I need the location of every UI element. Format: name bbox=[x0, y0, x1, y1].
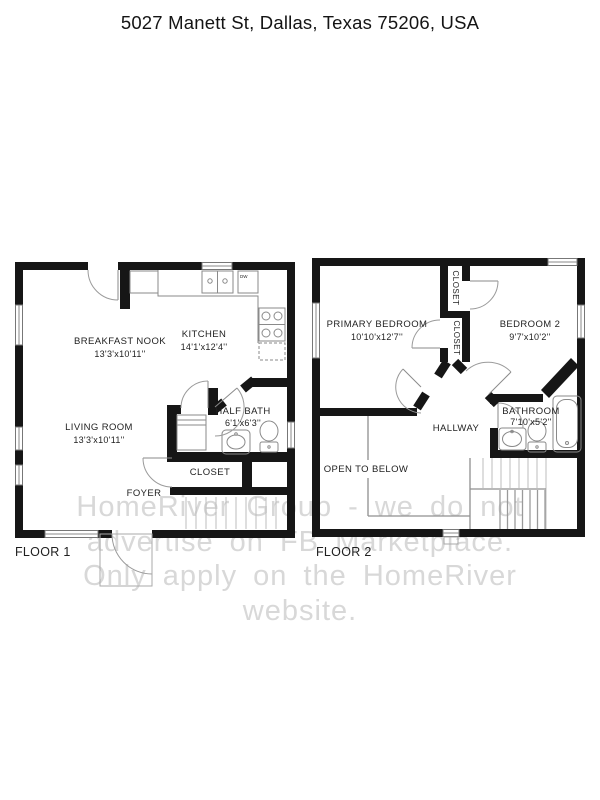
room-label-half-bath: HALF BATH bbox=[215, 406, 270, 417]
room-dims-living-room: 13'3'x10'11'' bbox=[73, 435, 124, 445]
room-label-breakfast-nook: BREAKFAST NOOK bbox=[74, 336, 166, 347]
floor2-windows bbox=[313, 259, 585, 545]
floor2-label: FLOOR 2 bbox=[316, 545, 372, 559]
floorplan-canvas: DW bbox=[0, 0, 600, 800]
closet-door bbox=[143, 458, 172, 487]
floor1-plan: DW bbox=[15, 262, 295, 586]
room-dims-kitchen: 14'1'x12'4'' bbox=[181, 342, 228, 352]
room-dims-half-bath: 6'1'x6'3'' bbox=[225, 418, 261, 428]
window bbox=[16, 305, 23, 345]
porch-steps bbox=[100, 534, 152, 586]
pantry-shelves bbox=[177, 415, 206, 450]
room-dims-primary-bedroom: 10'10'x12'7'' bbox=[351, 332, 403, 342]
window bbox=[16, 465, 23, 485]
stove bbox=[259, 308, 285, 341]
dishwasher: DW bbox=[238, 271, 258, 293]
window bbox=[443, 530, 459, 545]
dishwasher-label: DW bbox=[240, 274, 248, 279]
room-label-foyer: FOYER bbox=[127, 488, 162, 499]
kitchen-hall-door bbox=[181, 381, 208, 408]
window bbox=[578, 305, 585, 338]
room-label-open-to-below: OPEN TO BELOW bbox=[324, 464, 409, 475]
bathroom-sink-icon bbox=[499, 428, 526, 450]
floor2-walls bbox=[312, 258, 585, 537]
refrigerator bbox=[259, 343, 285, 360]
room-label-kitchen: KITCHEN bbox=[182, 329, 227, 340]
window bbox=[45, 531, 98, 538]
room-label-closet: CLOSET bbox=[190, 467, 230, 478]
room-dims-breakfast-nook: 13'3'x10'11'' bbox=[94, 349, 145, 359]
page-title: 5027 Manett St, Dallas, Texas 75206, USA bbox=[0, 12, 600, 34]
window bbox=[288, 422, 295, 448]
room-label-bedroom2: BEDROOM 2 bbox=[500, 319, 561, 330]
floor2-plan: PRIMARY BEDROOM 10'10'x12'7'' BEDROOM 2 … bbox=[312, 258, 585, 559]
window bbox=[313, 303, 320, 358]
floor1-stairs bbox=[186, 497, 276, 529]
room-dims-bathroom: 7'10'x5'2'' bbox=[510, 417, 551, 427]
window bbox=[16, 427, 23, 450]
window bbox=[202, 263, 232, 270]
floor1-label: FLOOR 1 bbox=[15, 545, 71, 559]
closet-top-door bbox=[470, 281, 498, 309]
kitchen-sink bbox=[202, 271, 233, 293]
bathtub-icon bbox=[553, 396, 581, 452]
bedroom2-door bbox=[466, 362, 511, 394]
window bbox=[548, 259, 577, 266]
halfbath-toilet-icon bbox=[260, 421, 278, 452]
room-dims-bedroom2: 9'7'x10'2'' bbox=[509, 332, 550, 342]
room-label-primary-bedroom: PRIMARY BEDROOM bbox=[327, 319, 428, 330]
floor1-labels: BREAKFAST NOOK 13'3'x10'11'' KITCHEN 14'… bbox=[15, 329, 271, 559]
front-door bbox=[112, 534, 152, 574]
room-label-hallway: HALLWAY bbox=[433, 423, 480, 434]
room-label-bathroom: BATHROOM bbox=[502, 406, 559, 417]
room-label-closet-top: CLOSET bbox=[451, 270, 460, 305]
room-label-closet-bottom: CLOSET bbox=[452, 320, 461, 355]
floor2-stairs bbox=[470, 458, 546, 529]
room-label-living-room: LIVING ROOM bbox=[65, 422, 133, 433]
back-door bbox=[88, 270, 118, 300]
